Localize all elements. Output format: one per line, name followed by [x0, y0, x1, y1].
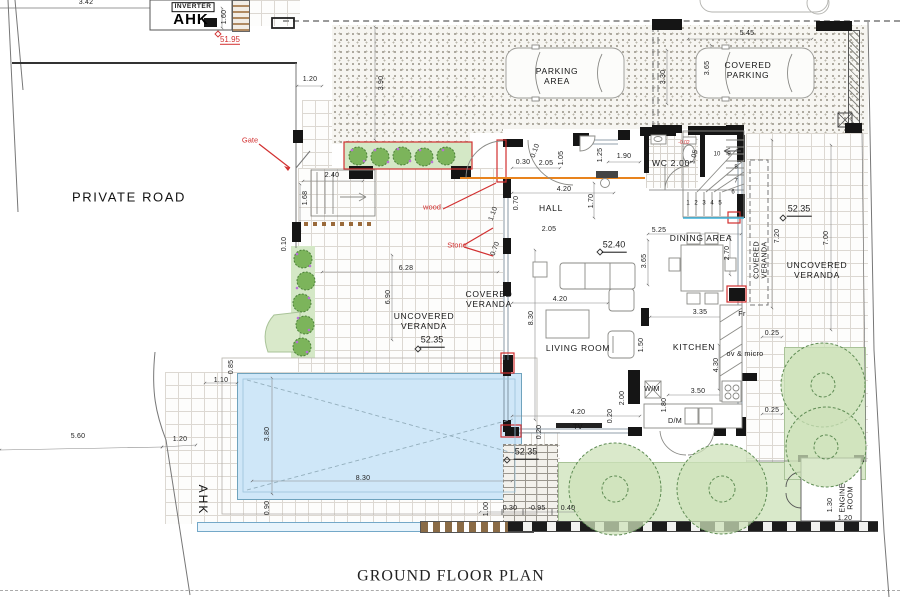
car-parking-area: [506, 45, 624, 101]
pergola-posts: [304, 222, 371, 226]
furniture: [243, 0, 861, 521]
red-accents: [259, 140, 746, 437]
plan-linework: [0, 0, 900, 597]
floor-plan-canvas: 3.42INVERTERAHK1.6051.95PRIVATE ROADGate…: [0, 0, 900, 597]
car-covered-parking: [696, 45, 814, 101]
pool-lines: [243, 379, 515, 492]
